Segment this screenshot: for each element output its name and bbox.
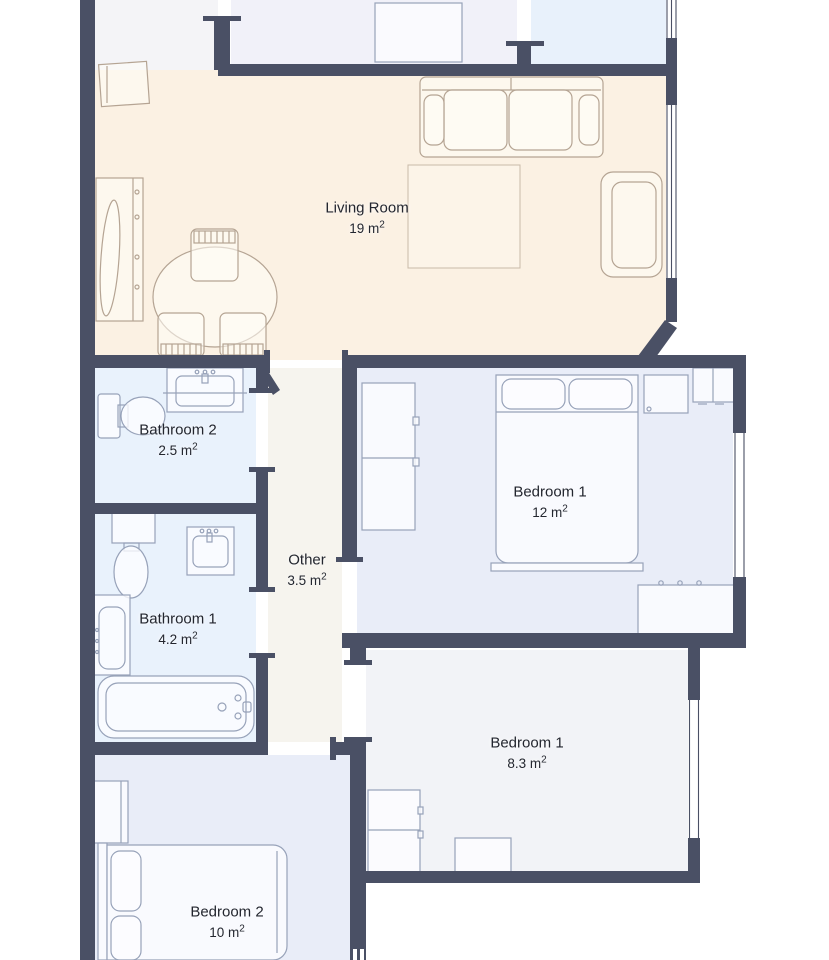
chair xyxy=(191,229,238,281)
door-stop xyxy=(344,660,372,665)
wall-bedroom-small-bottom xyxy=(350,871,700,883)
room-area: 19 m2 xyxy=(325,218,408,237)
door-stop xyxy=(336,557,363,562)
door-stop xyxy=(506,41,544,46)
door-stop xyxy=(344,737,372,742)
room-name: Bedroom 2 xyxy=(190,903,263,923)
bed-headboard xyxy=(98,843,107,960)
pillow xyxy=(111,916,141,960)
room-label-living-room: Living Room 19 m2 xyxy=(325,199,408,238)
wall-bedroom-small-right xyxy=(688,648,700,700)
wall-bedroom-1-right xyxy=(733,577,746,648)
room-label-bedroom-2: Bedroom 2 10 m2 xyxy=(190,903,263,942)
rug xyxy=(408,165,520,268)
wall-bathroom-2-right xyxy=(256,472,268,505)
wall-bathroom-1-bottom xyxy=(80,742,268,755)
cabinet xyxy=(368,790,420,873)
wardrobe-handle xyxy=(413,417,419,425)
wall-living-room-bottom xyxy=(80,355,270,368)
wall-bathroom-separator xyxy=(80,503,268,514)
room-name: Bedroom 1 xyxy=(513,483,586,503)
door-stop xyxy=(203,16,241,21)
room-label-other: Other 3.5 m2 xyxy=(287,551,326,590)
bed-footboard xyxy=(491,563,643,571)
cabinet-handle xyxy=(418,831,423,838)
sink xyxy=(187,527,234,575)
room-area: 8.3 m2 xyxy=(490,753,563,772)
toilet-tank xyxy=(98,394,120,438)
room-label-bathroom-2: Bathroom 2 2.5 m2 xyxy=(139,421,217,460)
door-stop xyxy=(249,653,275,658)
upper-right-room-floor xyxy=(531,0,666,64)
pillow xyxy=(111,851,141,911)
side-table xyxy=(455,838,511,873)
entry-hall-floor xyxy=(95,0,218,70)
room-label-bathroom-1: Bathroom 1 4.2 m2 xyxy=(139,610,217,649)
door-opening xyxy=(350,665,366,737)
armchair xyxy=(601,172,662,277)
sofa-cushion xyxy=(509,90,572,150)
door-stop xyxy=(249,467,275,472)
wall-top-stub xyxy=(214,16,230,70)
pillow xyxy=(569,379,632,409)
wall-left-exterior xyxy=(80,0,95,960)
room-label-bedroom-1-main: Bedroom 1 12 m2 xyxy=(513,483,586,522)
room-name: Living Room xyxy=(325,199,408,219)
room-name: Bathroom 2 xyxy=(139,421,217,441)
wall-cut-mark xyxy=(360,949,364,960)
closet xyxy=(92,781,128,843)
wall-right-segment xyxy=(666,38,677,66)
wall-hallway-right xyxy=(342,368,357,562)
open-door-leaf xyxy=(99,61,150,106)
toilet-bowl xyxy=(114,546,148,598)
sofa-armrest xyxy=(579,95,599,145)
room-area: 10 m2 xyxy=(190,922,263,941)
room-label-bedroom-1-small: Bedroom 1 8.3 m2 xyxy=(490,734,563,773)
wardrobe-handle xyxy=(413,458,419,466)
room-name: Bedroom 1 xyxy=(490,734,563,754)
wall-cut-mark xyxy=(353,949,357,960)
upper-room-furniture xyxy=(375,3,462,62)
wall-bedroom-1-top xyxy=(342,355,746,368)
wall-bathroom-1-right xyxy=(256,514,268,592)
floor-plan-drawing xyxy=(0,0,829,960)
room-area: 3.5 m2 xyxy=(287,570,326,589)
pillow xyxy=(502,379,565,409)
room-name: Other xyxy=(287,551,326,571)
chair xyxy=(220,313,266,357)
chair xyxy=(158,313,204,357)
door-stop xyxy=(249,587,275,592)
sofa-cushion xyxy=(444,90,507,150)
floor-plan: Living Room 19 m2 Bathroom 2 2.5 m2 Othe… xyxy=(0,0,829,960)
wardrobe xyxy=(362,383,415,530)
room-area: 4.2 m2 xyxy=(139,629,217,648)
bathtub xyxy=(98,676,254,738)
door-stop xyxy=(330,737,336,760)
toilet-tank xyxy=(112,513,155,543)
desk xyxy=(638,585,734,637)
wall-bedroom-1-right xyxy=(733,355,746,433)
wall-bedroom-1-bottom xyxy=(342,633,746,648)
wall-bathroom-1-right xyxy=(256,658,268,755)
cabinet-handle xyxy=(418,807,423,814)
sofa-armrest xyxy=(424,95,444,145)
wall-top-mid-stub xyxy=(517,46,531,66)
room-area: 12 m2 xyxy=(513,502,586,521)
wall-right-segment xyxy=(666,278,677,322)
wall-living-room-top xyxy=(218,64,677,76)
wall-right-segment xyxy=(666,76,677,105)
room-area: 2.5 m2 xyxy=(139,440,217,459)
upper-room-floor xyxy=(231,0,517,64)
room-name: Bathroom 1 xyxy=(139,610,217,630)
